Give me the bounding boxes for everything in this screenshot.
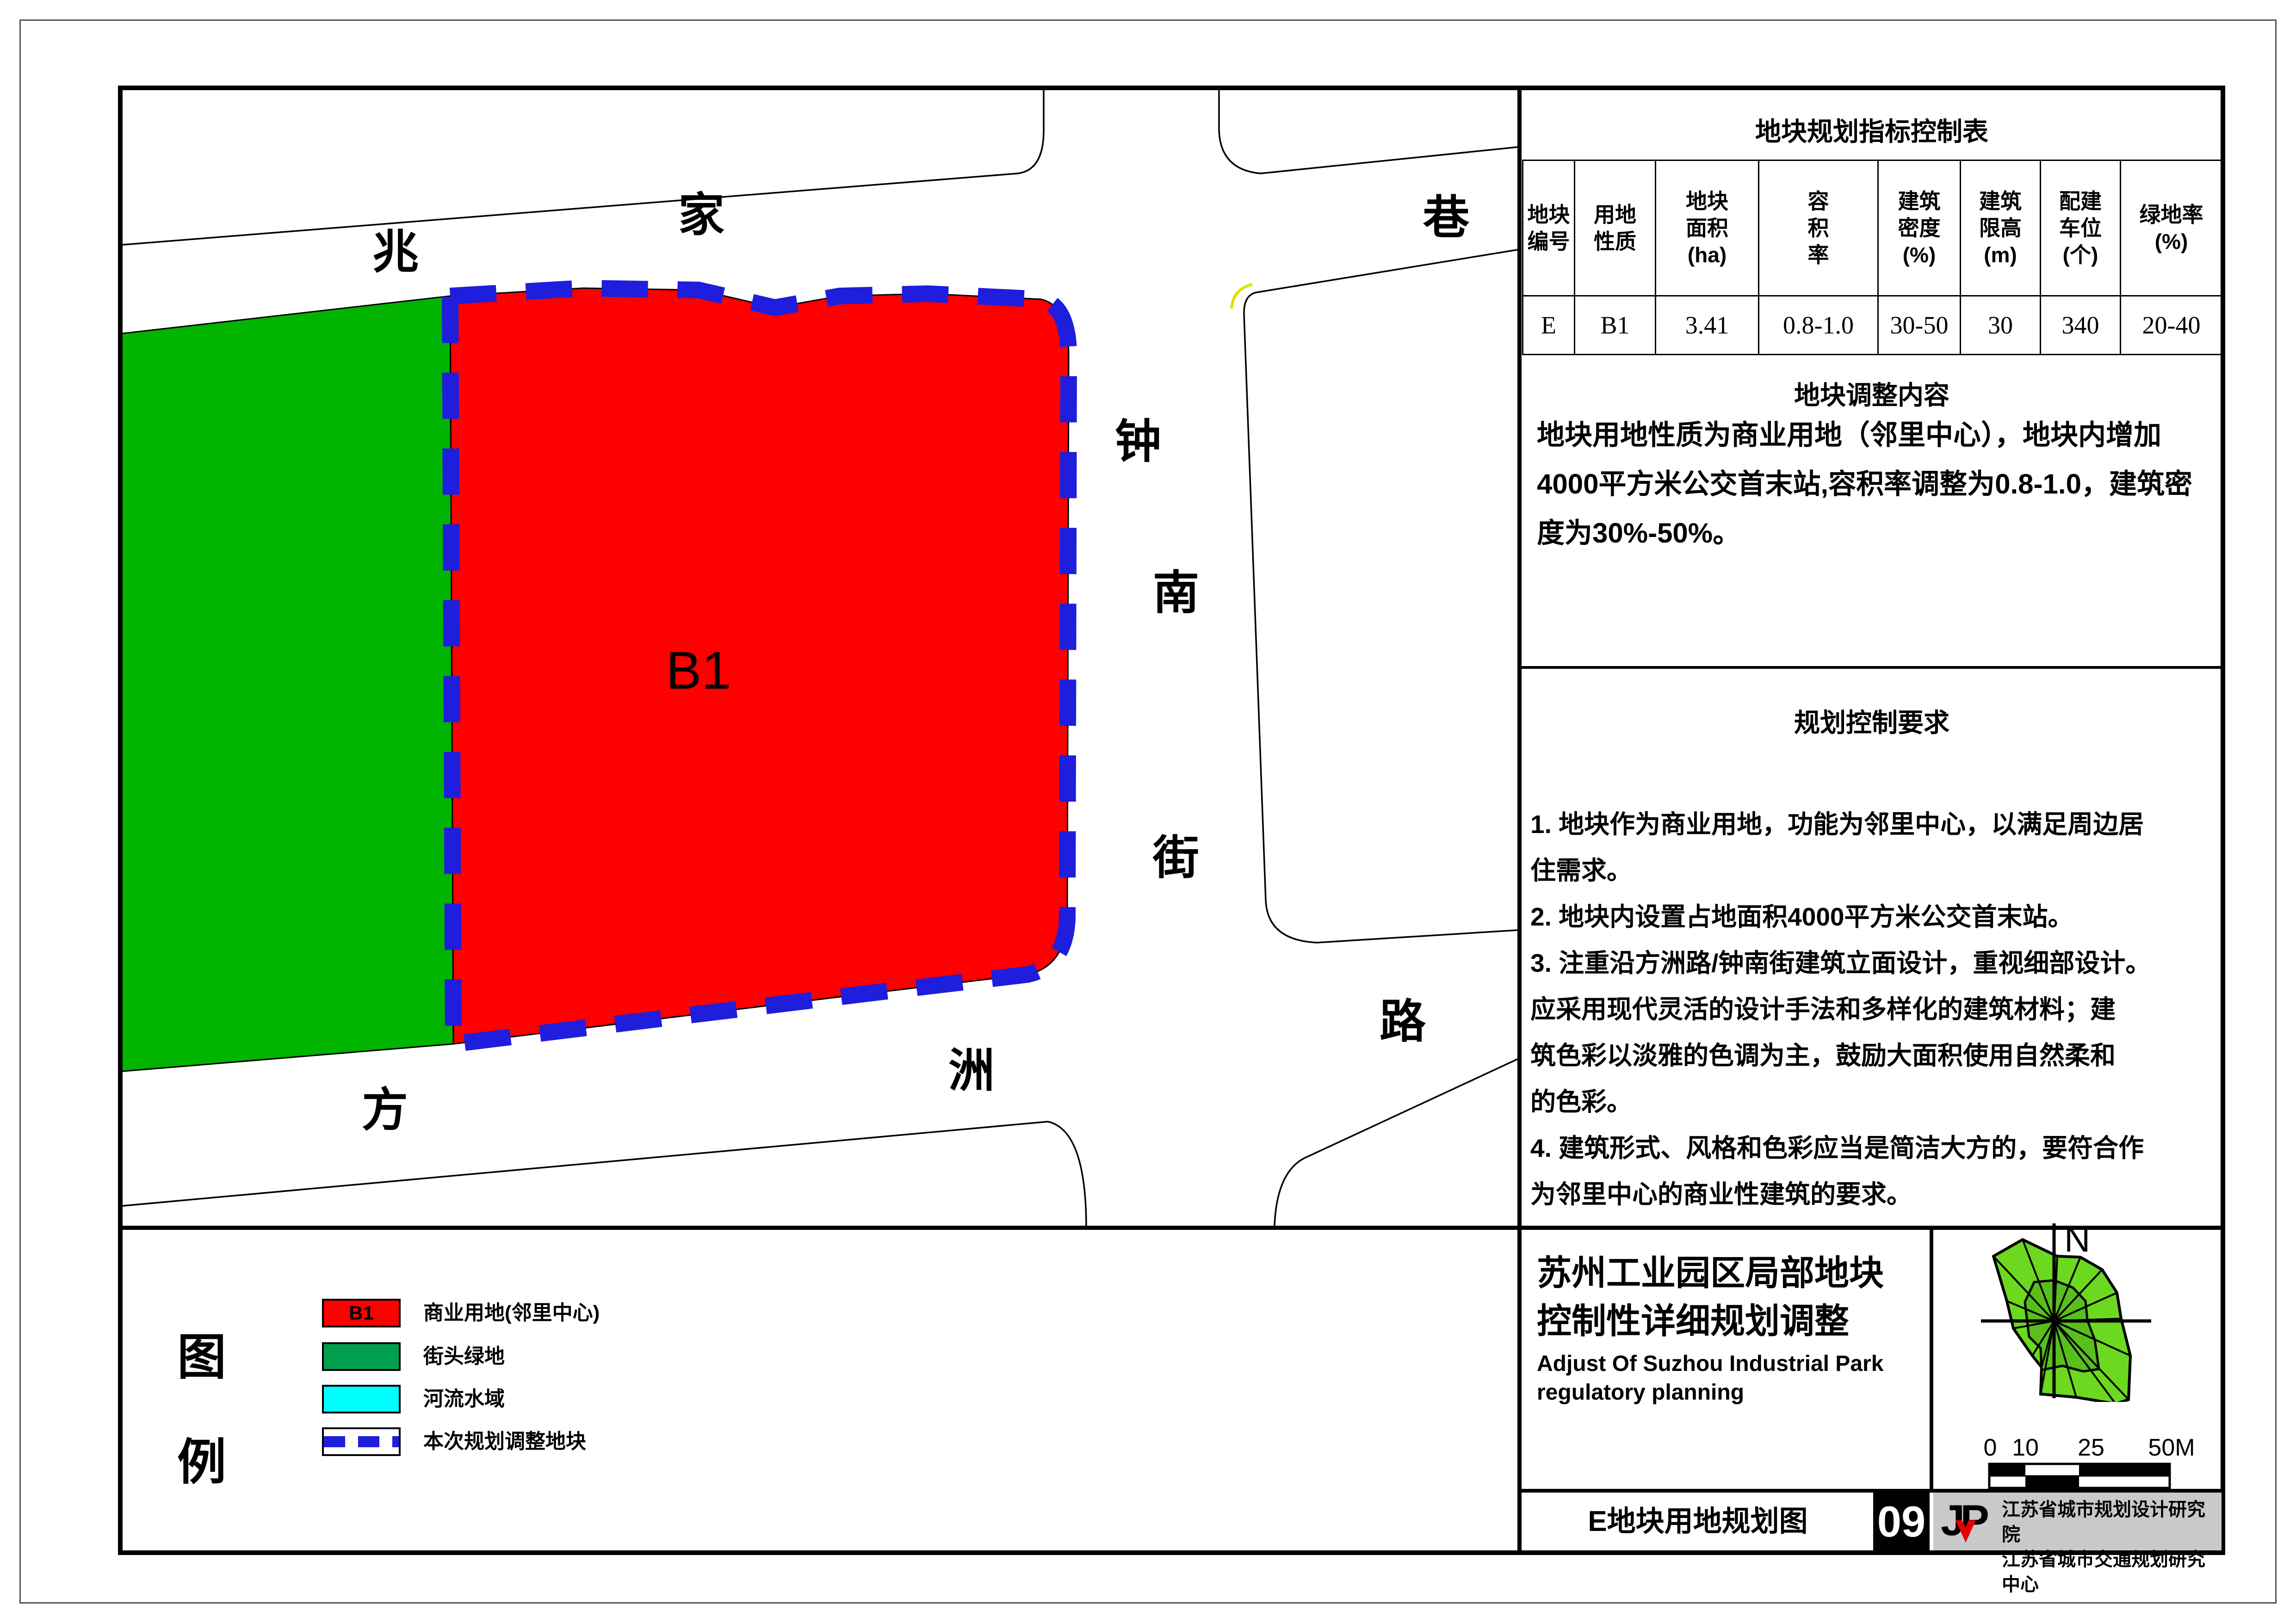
requirements-title: 规划控制要求 [1522,702,2222,740]
panel-divider-vertical [1517,86,1522,1555]
indicator-table: 地块 编号 用地 性质 地块 面积 (ha) 容 积 率 建筑 密度 (%) 建… [1522,160,2223,355]
plan-sheet: B1 兆 家 巷 钟 南 街 方 洲 路 地块规划指标控制表 地块 编号 用地 … [0,0,2296,1623]
jp-logo-icon: JP [1940,1496,1995,1547]
project-title-en: Adjust Of Suzhou Industrial Park regulat… [1537,1350,1925,1407]
cell-density: 30-50 [1878,296,1961,355]
legend-heading-tu: 图 [177,1317,226,1388]
adjustment-title: 地块调整内容 [1522,375,2222,412]
svg-text:50M: 50M [2148,1434,2195,1461]
scale-bar-labels: 0 10 25 50M [1984,1434,2195,1461]
cell-height: 30 [1961,296,2041,355]
north-arrow-icon: N [1980,1222,2156,1402]
cell-far: 0.8-1.0 [1759,296,1878,355]
legend-heading-li: 例 [177,1422,226,1493]
col-header-parking: 配建 车位 (个) [2041,160,2121,296]
project-title-cn: 苏州工业园区局部地块 控制性详细规划调整 [1537,1249,1925,1345]
indicator-table-header-row: 地块 编号 用地 性质 地块 面积 (ha) 容 积 率 建筑 密度 (%) 建… [1523,160,2222,296]
col-header-area: 地块 面积 (ha) [1656,160,1759,296]
col-header-plot-no: 地块 编号 [1523,160,1575,296]
legend-label-green-space: 街头绿地 [423,1345,505,1369]
legend-label-water: 河流水域 [423,1387,505,1411]
col-header-far: 容 积 率 [1759,160,1878,296]
cell-parking: 340 [2041,296,2121,355]
institution-names: 江苏省城市规划设计研究院 江苏省城市交通规划研究中心 [2002,1497,2219,1597]
col-header-land-use: 用地 性质 [1575,160,1656,296]
col-header-density: 建筑 密度 (%) [1878,160,1961,296]
cell-land-use: B1 [1575,296,1656,355]
legend-swatch-green-space [322,1342,401,1371]
drawing-title: E地块用地规划图 [1524,1493,1871,1550]
adjustment-body: 地块用地性质为商业用地（邻里中心），地块内增加 4000平方米公交首末站,容积率… [1537,411,2217,558]
legend-label-adjusted-parcel: 本次规划调整地块 [423,1430,586,1454]
sheet-number: 09 [1873,1493,1930,1550]
svg-text:0: 0 [1984,1434,1997,1461]
footer-strip-top-line [1517,1489,2225,1493]
map-legend-separator [118,1226,2225,1230]
cell-area: 3.41 [1656,296,1759,355]
indicator-table-title: 地块规划指标控制表 [1522,111,2222,148]
col-header-height: 建筑 限高 (m) [1961,160,2041,296]
legend-dash-sample [324,1436,399,1447]
cell-plot-no: E [1523,296,1575,355]
indicator-table-data-row: E B1 3.41 0.8-1.0 30-50 30 340 20-40 [1523,296,2222,355]
legend-label-commercial: 商业用地(邻里中心) [423,1301,600,1325]
scale-bar-blocks [1989,1464,2170,1488]
north-label: N [2064,1222,2090,1259]
legend-swatch-water [322,1385,401,1413]
requirements-body: 1. 地块作为商业用地，功能为邻里中心，以满足周边居 住需求。 2. 地块内设置… [1530,801,2220,1217]
legend-swatch-commercial: B1 [322,1299,401,1327]
legend-swatch-adjusted-parcel [322,1427,401,1456]
requirements-divider [1522,666,2225,669]
titleblock-divider [1930,1226,1933,1493]
scale-bar: 0 10 25 50M [1975,1432,2197,1489]
cell-greenrate: 20-40 [2121,296,2222,355]
svg-text:25: 25 [2078,1434,2104,1461]
col-header-greenrate: 绿地率 (%) [2121,160,2222,296]
svg-text:10: 10 [2012,1434,2039,1461]
institution-cell: JP 江苏省城市规划设计研究院 江苏省城市交通规划研究中心 [1933,1493,2222,1550]
